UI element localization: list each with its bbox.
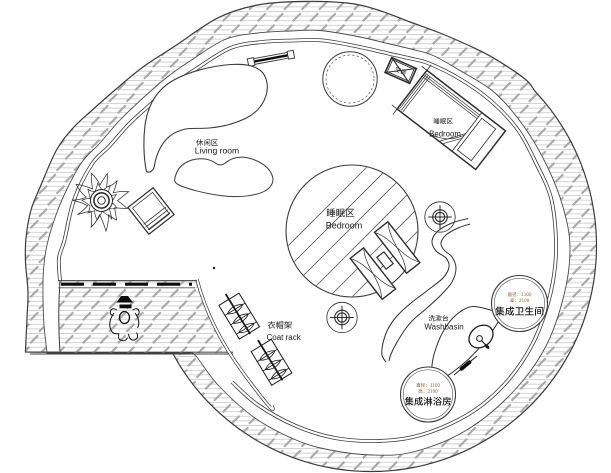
svg-text:Bedroom: Bedroom <box>326 221 363 231</box>
svg-text:Washbasin: Washbasin <box>424 323 463 332</box>
svg-text:Bedroom: Bedroom <box>429 129 461 138</box>
svg-text:Coat rack: Coat rack <box>267 333 302 342</box>
svg-text:Living room: Living room <box>195 146 239 156</box>
